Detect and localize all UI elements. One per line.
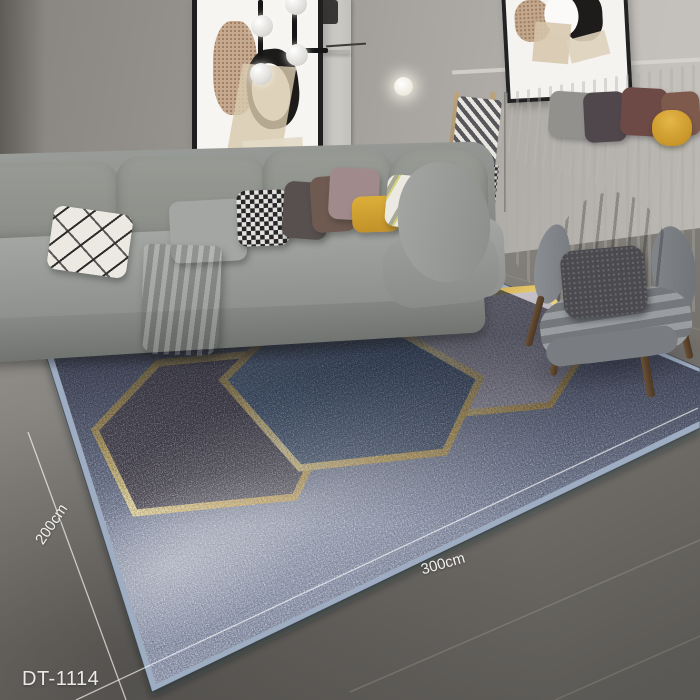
rug-product-photo: 200cm 300cm DT-1114 [0, 0, 700, 700]
chair-pillow [559, 244, 649, 319]
sofa-throw-blanket [140, 244, 222, 357]
product-code-label: DT-1114 [22, 668, 99, 691]
sofa-pillow-black-white-pattern [46, 205, 134, 280]
